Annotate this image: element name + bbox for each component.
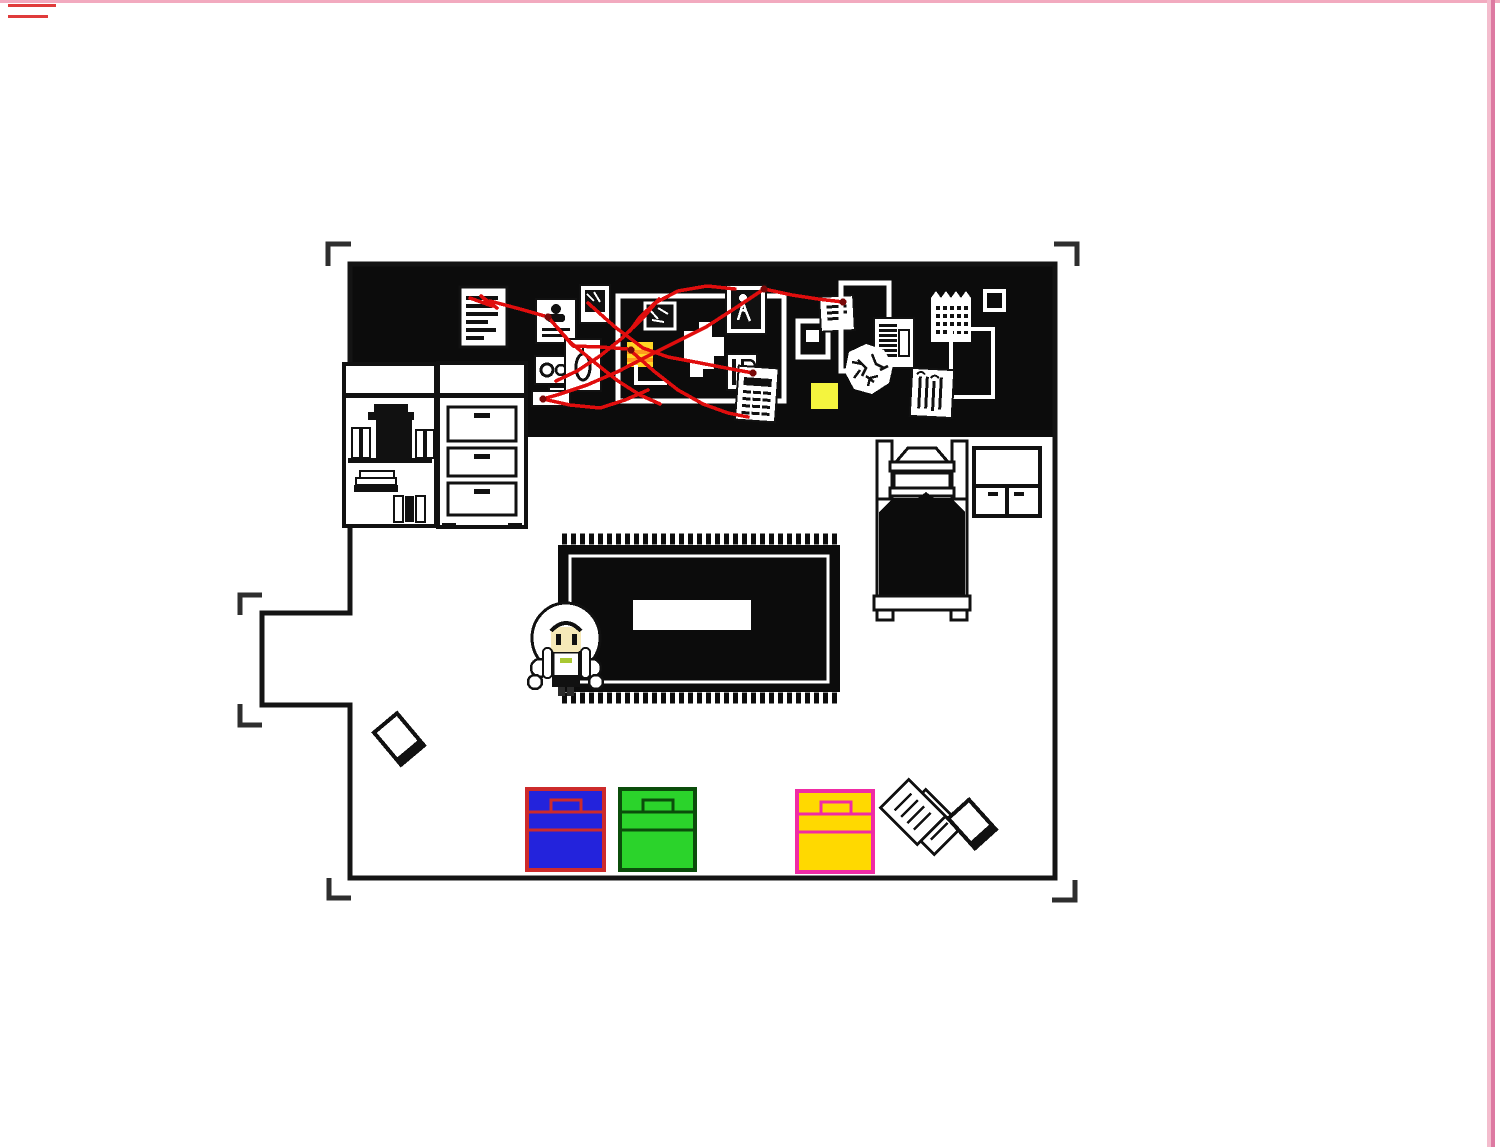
screen-right-border-light	[1487, 0, 1491, 1147]
game-screen	[0, 0, 1500, 1147]
drawer-bottom[interactable]	[448, 483, 516, 515]
dresser[interactable]	[438, 363, 526, 529]
blanket	[879, 492, 965, 598]
eye-right	[572, 634, 577, 645]
drawer-top[interactable]	[448, 407, 516, 441]
screen-right-border	[1491, 0, 1495, 1147]
floor-book-right[interactable]	[948, 800, 996, 848]
chest-blue[interactable]	[527, 789, 604, 870]
person-icon	[551, 304, 561, 314]
receipt[interactable]	[735, 366, 779, 423]
body	[553, 652, 579, 676]
bracket-bottom-left	[329, 878, 351, 898]
drawer-handle	[474, 454, 490, 459]
pillow	[894, 473, 950, 488]
bracket-alcove-top	[240, 595, 262, 615]
bracket-bottom-right	[1052, 880, 1075, 900]
skirt	[552, 676, 580, 687]
floor-book-left[interactable]	[374, 713, 425, 765]
drawer-handle	[474, 489, 490, 494]
cabinet-handle-right	[1014, 492, 1024, 496]
leg-left	[558, 687, 565, 696]
cabinet-handle-left	[988, 492, 998, 496]
bed[interactable]	[874, 441, 970, 620]
screen-top-border	[0, 0, 1500, 3]
chest-green[interactable]	[620, 789, 695, 870]
bracket-alcove-bottom	[240, 704, 262, 725]
player-character[interactable]	[528, 603, 603, 696]
nightstand[interactable]	[974, 448, 1040, 516]
chest-yellow[interactable]	[797, 791, 873, 872]
eye-left	[556, 634, 561, 645]
tally-paper[interactable]	[910, 368, 954, 418]
collar	[560, 658, 572, 663]
red-dash-2	[8, 15, 48, 18]
red-dash-1	[8, 4, 56, 7]
hair-strand-left	[543, 648, 552, 678]
suspect-card[interactable]	[536, 299, 576, 343]
drawer-middle[interactable]	[448, 448, 516, 476]
leg-right	[567, 687, 574, 696]
hair-strand-right	[581, 648, 590, 678]
drawer-handle	[474, 413, 490, 418]
sticky-square[interactable]	[811, 383, 838, 409]
bookshelf[interactable]	[344, 364, 436, 526]
rug	[558, 539, 840, 698]
